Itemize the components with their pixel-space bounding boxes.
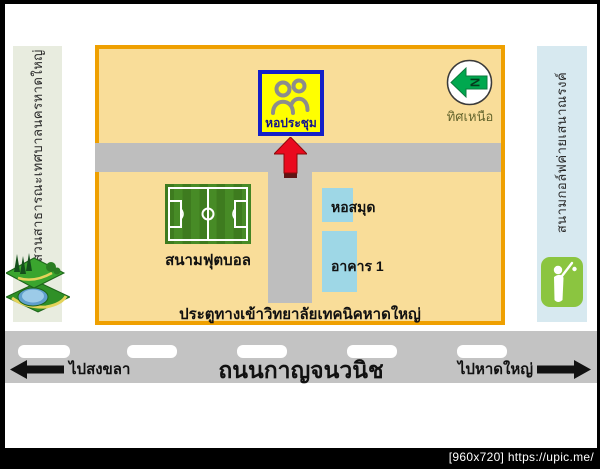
right-arrow-icon: [537, 360, 591, 379]
park-icon: [6, 252, 70, 314]
compass-letter: N: [468, 78, 483, 87]
park-label: สวนสาธารณะเทศบาลนครหาดใหญ่: [27, 49, 48, 262]
golf-label: สนามกอล์ฟค่ายเสนาณรงค์: [552, 71, 573, 232]
auditorium-marker: หอประชุม: [258, 70, 324, 136]
up-arrow-icon: [274, 137, 307, 179]
auditorium-label: หอประชุม: [265, 115, 317, 132]
watermark-text: [960x720] https://upic.me/: [449, 450, 594, 464]
north-compass-icon: N: [446, 59, 493, 106]
gate-label: ประตูทางเข้าวิทยาลัยเทคนิคหาดใหญ่: [95, 302, 505, 326]
people-icon: [270, 77, 314, 115]
map-figure: สวนสาธารณะเทศบาลนครหาดใหญ่ สนามกอล์ฟค่าย…: [0, 0, 600, 469]
compass-label: ทิศเหนือ: [438, 106, 502, 127]
building-1-label: อาคาร 1: [331, 256, 384, 278]
golf-icon: [541, 257, 583, 307]
library-label: หอสมุด: [331, 197, 376, 219]
football-field-label: สนามฟุตบอล: [140, 248, 276, 272]
main-road: ไปสงขลา ถนนกาญจนวนิช ไปหาดใหญ่: [5, 331, 597, 383]
football-field-icon: [165, 184, 251, 244]
direction-right-label: ไปหาดใหญ่: [458, 357, 533, 381]
